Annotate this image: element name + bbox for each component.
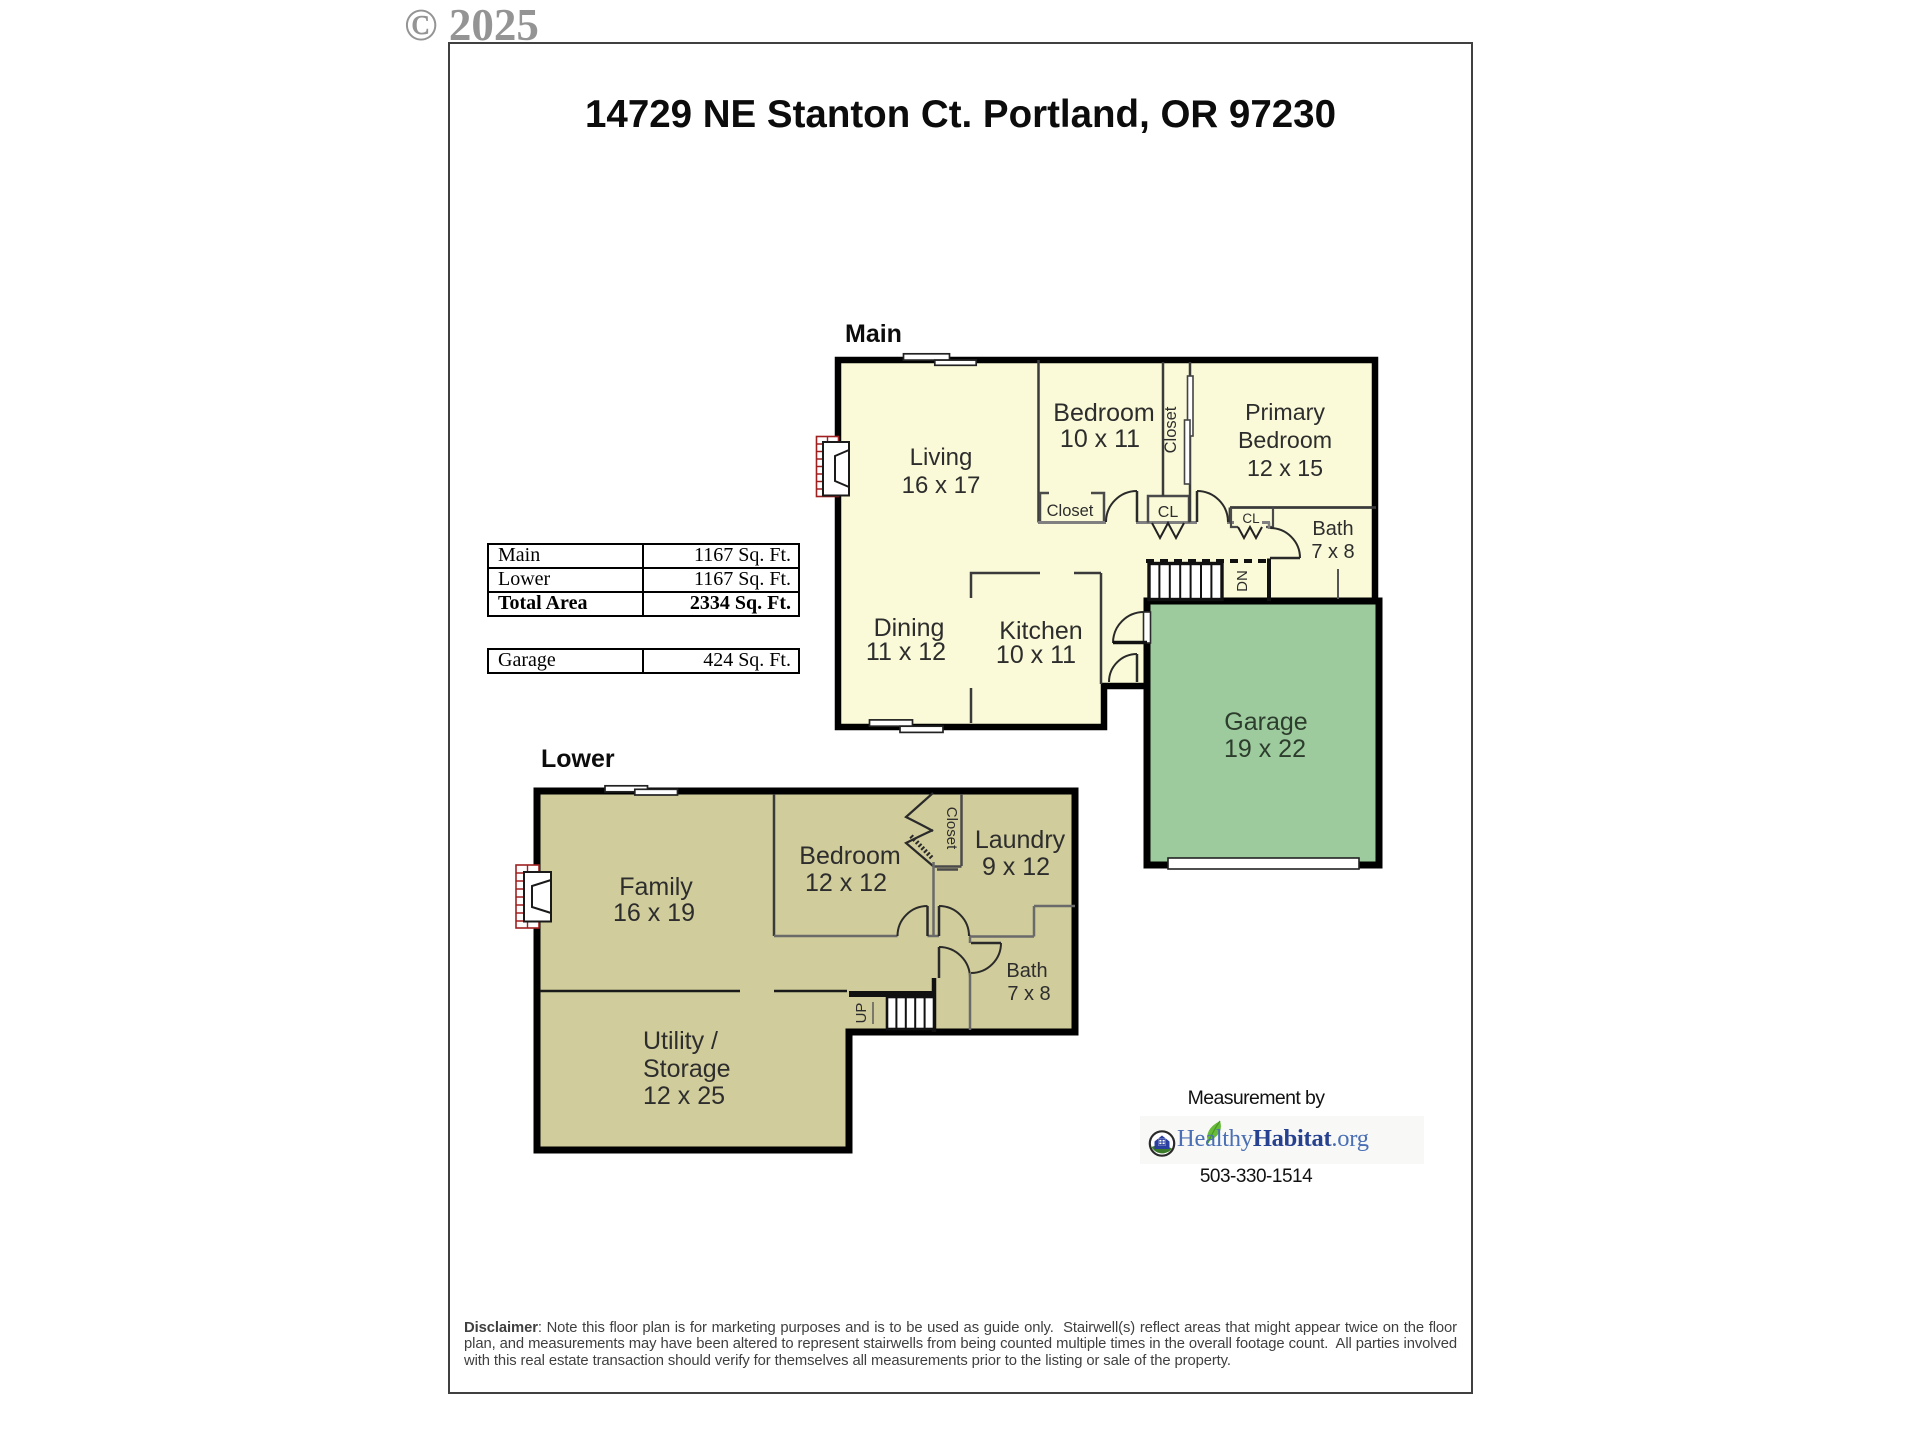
- svg-text:UP: UP: [853, 1003, 870, 1024]
- svg-text:12 x 25: 12 x 25: [643, 1082, 725, 1110]
- svg-text:Bedroom: Bedroom: [1053, 399, 1154, 427]
- svg-text:Storage: Storage: [643, 1055, 731, 1083]
- svg-text:Utility /: Utility /: [643, 1027, 718, 1055]
- svg-text:12 x 12: 12 x 12: [805, 869, 887, 897]
- svg-text:Living: Living: [910, 444, 973, 471]
- svg-text:16 x 19: 16 x 19: [613, 899, 695, 927]
- svg-text:Bedroom: Bedroom: [799, 842, 900, 870]
- svg-text:Bath: Bath: [1312, 518, 1353, 540]
- svg-text:Closet: Closet: [943, 807, 960, 850]
- svg-text:12 x 15: 12 x 15: [1247, 455, 1323, 481]
- svg-text:CL: CL: [1242, 511, 1260, 526]
- svg-text:9 x 12: 9 x 12: [982, 853, 1050, 881]
- svg-text:10 x 11: 10 x 11: [996, 641, 1076, 669]
- svg-text:19 x 22: 19 x 22: [1224, 735, 1306, 763]
- svg-text:Bedroom: Bedroom: [1238, 427, 1332, 453]
- svg-text:Laundry: Laundry: [975, 826, 1066, 854]
- svg-text:10 x 11: 10 x 11: [1060, 425, 1140, 453]
- svg-text:16 x 17: 16 x 17: [902, 472, 981, 499]
- svg-text:Primary: Primary: [1245, 399, 1325, 425]
- svg-text:7 x 8: 7 x 8: [1007, 983, 1050, 1005]
- svg-text:11 x 12: 11 x 12: [866, 638, 946, 666]
- svg-text:Family: Family: [619, 873, 693, 901]
- svg-text:Closet: Closet: [1047, 502, 1094, 520]
- svg-text:CL: CL: [1158, 504, 1179, 521]
- svg-text:Garage: Garage: [1224, 708, 1307, 736]
- svg-text:Closet: Closet: [1162, 406, 1180, 453]
- svg-text:7 x 8: 7 x 8: [1311, 541, 1354, 563]
- svg-text:DN: DN: [1234, 570, 1251, 592]
- svg-text:Bath: Bath: [1006, 960, 1047, 982]
